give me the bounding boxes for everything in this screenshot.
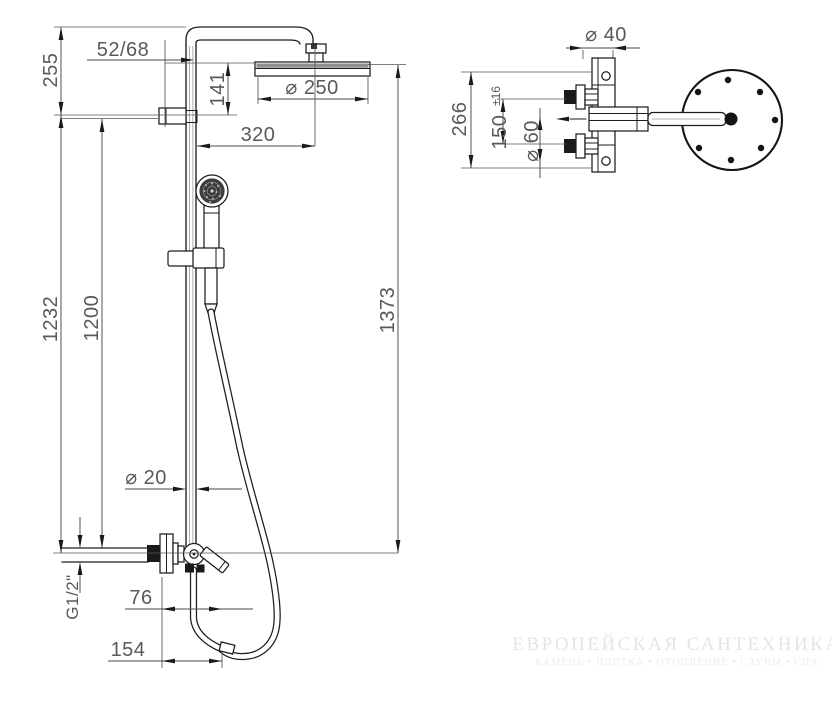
dim-wall-offset-label: 52/68 [97,39,150,61]
plate-screw-hole-bottom [602,157,610,165]
dim-inlet-tolerance-label: ±16 [489,86,503,106]
dim-head-drop-label: 141 [207,72,229,107]
outlet-arrow-icon [556,117,569,122]
drawing-canvas: ЕВРОПЕЙСКАЯ САНТЕХНИКА КАМЕНЬ • ПЛИТКА •… [0,0,832,711]
shower-system-technical-drawing: ЕВРОПЕЙСКАЯ САНТЕХНИКА КАМЕНЬ • ПЛИТКА •… [0,0,832,711]
dim-top-section-label: 255 [40,53,62,88]
dim-rosette-diameter-label: ⌀ 60 [521,120,543,162]
plate-screw-hole-top [602,72,610,80]
arm-cap [725,113,738,126]
mixer-valve [62,534,229,573]
dim-pipe-diameter-label: ⌀ 20 [125,467,167,489]
dim-rail-height-label: 1200 [81,295,103,342]
dim-plate-width-label: ⌀ 40 [585,24,627,46]
dim-spout-projection-label: 76 [129,587,152,609]
watermark-subtitle: КАМЕНЬ • ПЛИТКА • ОТОПЛЕНИЕ • САУНЫ • СП… [535,657,819,668]
dim-thread-label: G1/2" [63,574,82,619]
watermark: ЕВРОПЕЙСКАЯ САНТЕХНИКА КАМЕНЬ • ПЛИТКА •… [512,634,832,668]
dim-body-height-label: 266 [449,102,471,137]
head-connector [306,43,326,62]
mixer-nut [147,545,160,562]
hand-shower [196,175,228,253]
dim-hose-projection-label: 154 [111,639,146,661]
inlet-valve-top [564,85,598,109]
dim-column-height-label: 1232 [40,296,62,343]
dim-head-projection-label: 320 [241,124,276,146]
dim-head-diameter-label: ⌀ 250 [285,77,338,99]
side-view [556,58,782,172]
dim-inlet-spacing-label: 150 [489,115,511,150]
inlet-valve-bottom [564,134,598,158]
dim-total-height-label: 1373 [377,287,399,334]
shower-hose [194,312,278,657]
front-view [62,27,370,657]
overhead-shower-head [255,62,370,76]
watermark-title: ЕВРОПЕЙСКАЯ САНТЕХНИКА [512,634,832,655]
